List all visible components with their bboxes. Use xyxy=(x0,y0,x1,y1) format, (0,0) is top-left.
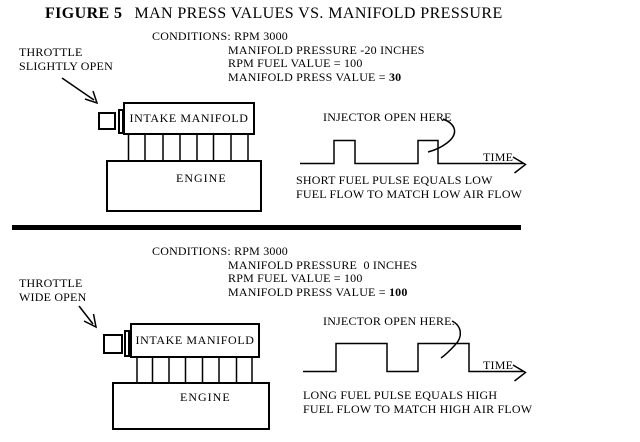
throttle-body xyxy=(103,334,123,354)
intake-manifold-box: INTAKE MANIFOLD xyxy=(123,102,255,135)
figure-number: FIGURE 5 xyxy=(45,5,122,22)
engine-label: ENGINE xyxy=(176,171,227,186)
pulse-caption-line1: SHORT FUEL PULSE EQUALS LOW xyxy=(296,174,493,188)
figure-title-text: MAN PRESS VALUES VS. MANIFOLD PRESSURE xyxy=(134,5,502,22)
engine-box: ENGINE xyxy=(106,160,262,212)
conditions-line: MANIFOLD PRESSURE 0 INCHES xyxy=(228,259,417,273)
figure-title: FIGURE 5MAN PRESS VALUES VS. MANIFOLD PR… xyxy=(45,5,503,23)
manifold-press-value: 100 xyxy=(389,285,408,299)
conditions-press-label: MANIFOLD PRESS VALUE = xyxy=(228,285,389,299)
throttle-flange xyxy=(124,330,130,357)
pulse-caption-line2: FUEL FLOW TO MATCH HIGH AIR FLOW xyxy=(303,403,532,417)
manifold-press-value: 30 xyxy=(389,70,401,84)
pulse-caption-line1: LONG FUEL PULSE EQUALS HIGH xyxy=(303,389,497,403)
time-axis-label: TIME xyxy=(483,359,513,373)
throttle-label-line2: SLIGHTLY OPEN xyxy=(19,60,113,74)
engine-label: ENGINE xyxy=(180,390,231,405)
pulse-caption-line2: FUEL FLOW TO MATCH LOW AIR FLOW xyxy=(296,188,522,202)
conditions-line: RPM FUEL VALUE = 100 xyxy=(228,57,363,71)
conditions-line: MANIFOLD PRESSURE -20 INCHES xyxy=(228,44,425,58)
section-divider-rule xyxy=(12,225,521,230)
throttle-label-line1: THROTTLE xyxy=(19,46,83,60)
intake-manifold-label: INTAKE MANIFOLD xyxy=(129,111,248,126)
throttle-body xyxy=(98,112,116,130)
conditions-line: MANIFOLD PRESS VALUE = 30 xyxy=(228,71,401,85)
injector-open-label: INJECTOR OPEN HERE xyxy=(323,111,452,125)
conditions-press-label: MANIFOLD PRESS VALUE = xyxy=(228,70,389,84)
injector-open-label: INJECTOR OPEN HERE. xyxy=(323,315,455,329)
intake-manifold-label: INTAKE MANIFOLD xyxy=(135,333,254,348)
intake-manifold-box: INTAKE MANIFOLD xyxy=(130,323,260,358)
conditions-line: RPM FUEL VALUE = 100 xyxy=(228,272,363,286)
conditions-line: CONDITIONS: RPM 3000 xyxy=(152,30,288,44)
throttle-label-line1: THROTTLE xyxy=(19,277,83,291)
time-axis-label: TIME xyxy=(483,151,513,165)
conditions-line: MANIFOLD PRESS VALUE = 100 xyxy=(228,286,408,300)
conditions-line: CONDITIONS: RPM 3000 xyxy=(152,245,288,259)
engine-box: ENGINE xyxy=(112,382,270,431)
throttle-label-line2: WIDE OPEN xyxy=(19,291,86,305)
